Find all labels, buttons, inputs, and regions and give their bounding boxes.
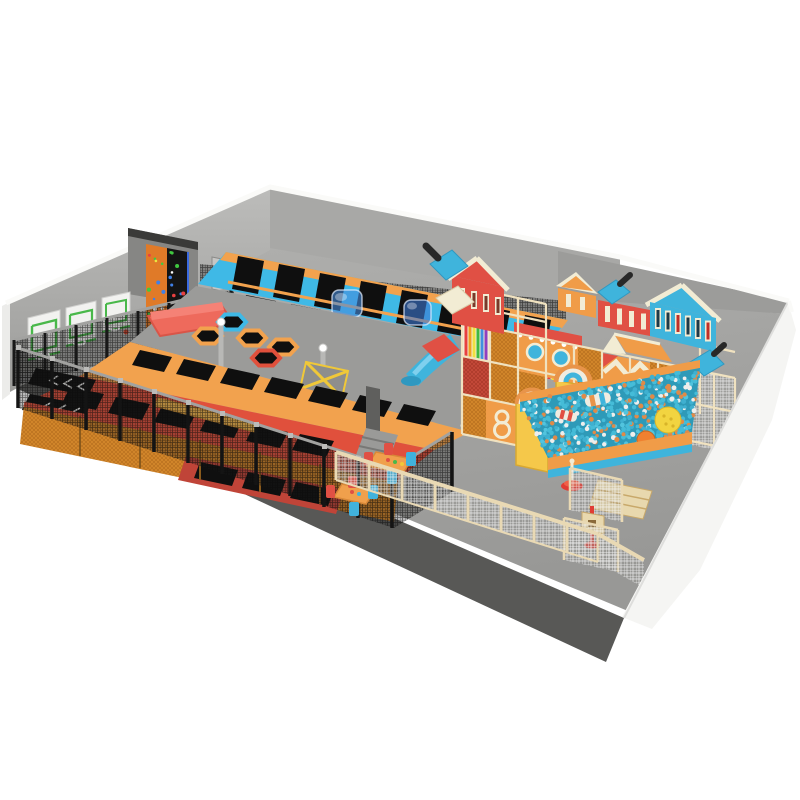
ball — [533, 416, 537, 420]
ball — [547, 398, 551, 402]
climbing-hold — [161, 290, 165, 294]
ball — [554, 419, 557, 422]
ball — [692, 374, 696, 378]
ball — [633, 387, 638, 392]
ball — [692, 408, 697, 413]
ball — [575, 448, 580, 453]
ball — [623, 388, 627, 392]
ball — [572, 428, 577, 433]
ball — [602, 418, 606, 422]
ball — [625, 431, 628, 434]
ball — [589, 389, 593, 393]
ball — [662, 389, 666, 393]
ball — [676, 390, 681, 395]
ball — [622, 383, 626, 387]
ball — [532, 399, 537, 404]
ball — [653, 385, 657, 389]
ball — [545, 416, 550, 421]
climbing-hold — [153, 298, 155, 300]
ball — [585, 446, 589, 450]
ball — [545, 439, 549, 443]
ball — [691, 398, 695, 402]
ball — [629, 421, 633, 425]
ball — [622, 432, 626, 436]
ball — [673, 399, 678, 404]
kids-chair — [349, 502, 359, 516]
ball — [633, 398, 637, 402]
ball — [580, 428, 585, 433]
ball — [640, 389, 644, 393]
ball — [647, 419, 651, 423]
ball — [656, 374, 661, 379]
ball — [666, 388, 671, 393]
ball — [539, 414, 543, 418]
ball — [562, 395, 566, 399]
ball — [657, 381, 660, 384]
ball — [644, 390, 649, 395]
ball — [636, 425, 640, 429]
ball — [637, 379, 642, 384]
ball — [621, 427, 626, 432]
ball — [636, 429, 640, 433]
ball — [642, 412, 646, 416]
ball — [630, 432, 635, 437]
ball — [543, 431, 547, 435]
ball — [531, 408, 536, 413]
ball — [646, 426, 650, 430]
ball — [628, 398, 632, 402]
ball — [546, 434, 550, 438]
ball — [542, 422, 546, 426]
mesh-bay-red — [462, 356, 490, 400]
ball — [589, 438, 594, 443]
ball — [664, 393, 668, 397]
climbing-hold — [168, 276, 172, 280]
kids-chair — [384, 443, 393, 455]
ball — [606, 406, 609, 409]
ball — [549, 445, 553, 449]
climbing-hold — [155, 260, 158, 263]
ball — [589, 417, 594, 422]
ball — [627, 415, 632, 420]
ball — [681, 399, 686, 404]
ball — [624, 405, 629, 410]
ball — [602, 433, 606, 437]
ball — [615, 389, 619, 393]
ball — [585, 427, 590, 432]
ball — [561, 400, 565, 404]
ball — [683, 377, 687, 381]
ball — [581, 407, 584, 410]
ball — [677, 380, 680, 383]
ball — [606, 423, 611, 428]
ball — [683, 405, 687, 409]
ball — [572, 406, 577, 411]
playground-render — [0, 0, 800, 800]
ball — [538, 432, 542, 436]
ball — [577, 441, 581, 445]
ball — [525, 405, 529, 409]
ball — [623, 410, 628, 415]
ball — [693, 379, 697, 383]
ball — [615, 409, 620, 414]
ball — [588, 413, 592, 417]
ball — [645, 404, 649, 408]
ball — [586, 421, 590, 425]
hex-trampoline — [194, 329, 222, 344]
ball — [650, 394, 655, 399]
ball — [607, 413, 612, 418]
hex-trampoline — [252, 351, 280, 366]
ball — [688, 414, 693, 419]
ball — [630, 391, 635, 396]
ball — [640, 385, 645, 390]
porthole-window — [553, 350, 569, 366]
ball — [610, 401, 614, 405]
climbing-hold — [147, 288, 151, 292]
ball — [579, 391, 583, 395]
ball — [679, 395, 683, 399]
ball — [602, 442, 606, 446]
climbing-hold — [154, 257, 157, 260]
ball — [576, 403, 581, 408]
ball — [593, 408, 597, 412]
ball — [601, 406, 605, 410]
ball — [618, 397, 622, 401]
big-yellow-ball — [655, 407, 681, 433]
ball — [564, 429, 568, 433]
ball — [545, 409, 549, 413]
ball — [549, 451, 553, 455]
porthole-window — [527, 344, 543, 360]
ball — [582, 437, 587, 442]
ball — [550, 409, 554, 413]
ball — [653, 407, 657, 411]
ball — [661, 398, 665, 402]
left-wall-outer-edge — [2, 302, 10, 400]
ball — [632, 405, 636, 409]
ball — [638, 403, 643, 408]
ball — [599, 386, 604, 391]
ball — [553, 435, 558, 440]
ball — [665, 375, 670, 380]
ball — [659, 433, 663, 437]
climbing-hold — [172, 294, 176, 298]
ball — [532, 405, 536, 409]
ball — [608, 386, 613, 391]
ball — [598, 445, 602, 449]
ball — [641, 427, 645, 431]
ball — [672, 385, 677, 390]
climbing-hold — [169, 251, 172, 254]
ball — [602, 425, 606, 429]
ball — [522, 408, 526, 412]
hex-trampoline — [238, 331, 266, 346]
kids-chair — [326, 485, 335, 498]
climbing-hold — [175, 264, 179, 268]
mesh-bay — [462, 394, 486, 439]
ball — [611, 431, 616, 436]
ball — [627, 435, 631, 439]
ball — [672, 390, 676, 394]
climbing-hold — [156, 281, 160, 285]
ball — [581, 422, 585, 426]
ball — [534, 422, 539, 427]
inflatable-cube — [332, 290, 362, 317]
climbing-hold — [181, 291, 185, 295]
ball — [554, 445, 559, 450]
ball — [612, 424, 616, 428]
ball — [635, 412, 639, 416]
mesh-bay — [490, 362, 518, 406]
ball — [627, 427, 631, 431]
ball — [687, 385, 692, 390]
ball — [560, 438, 565, 443]
ball — [689, 382, 693, 386]
ball — [620, 423, 625, 428]
ball — [670, 376, 675, 381]
ball — [694, 392, 698, 396]
ball — [564, 442, 568, 446]
ball — [626, 381, 630, 385]
ball — [540, 439, 544, 443]
ball — [682, 392, 686, 396]
ball — [593, 431, 597, 435]
ball — [618, 385, 622, 389]
ball — [659, 394, 663, 398]
ball — [650, 375, 655, 380]
ball — [648, 385, 652, 389]
ball — [582, 448, 586, 452]
ball — [656, 385, 660, 389]
ball — [634, 420, 637, 423]
ball — [625, 424, 629, 428]
ball — [687, 425, 691, 429]
ball — [585, 406, 590, 411]
ball — [564, 450, 568, 454]
ball — [573, 401, 577, 405]
ball — [620, 419, 624, 423]
ball — [597, 426, 601, 430]
ball — [549, 431, 554, 436]
climbing-hold — [171, 271, 174, 274]
ball — [550, 421, 555, 426]
ball — [590, 421, 595, 426]
inflatable-cube — [404, 300, 431, 325]
ball — [645, 396, 649, 400]
ball — [581, 415, 585, 419]
ball — [557, 397, 561, 401]
ball — [567, 396, 571, 400]
ball — [595, 421, 600, 426]
ball — [614, 437, 619, 442]
ball — [650, 403, 653, 406]
ball — [527, 416, 531, 420]
ball — [674, 371, 678, 375]
ball — [564, 423, 568, 427]
climbing-hold — [148, 254, 151, 257]
climbing-hold — [161, 263, 164, 266]
ball — [530, 413, 534, 417]
climbing-hold — [170, 283, 173, 286]
scene-svg — [0, 0, 800, 800]
kids-chair — [406, 452, 416, 466]
ball — [554, 426, 558, 430]
ball — [687, 411, 691, 415]
